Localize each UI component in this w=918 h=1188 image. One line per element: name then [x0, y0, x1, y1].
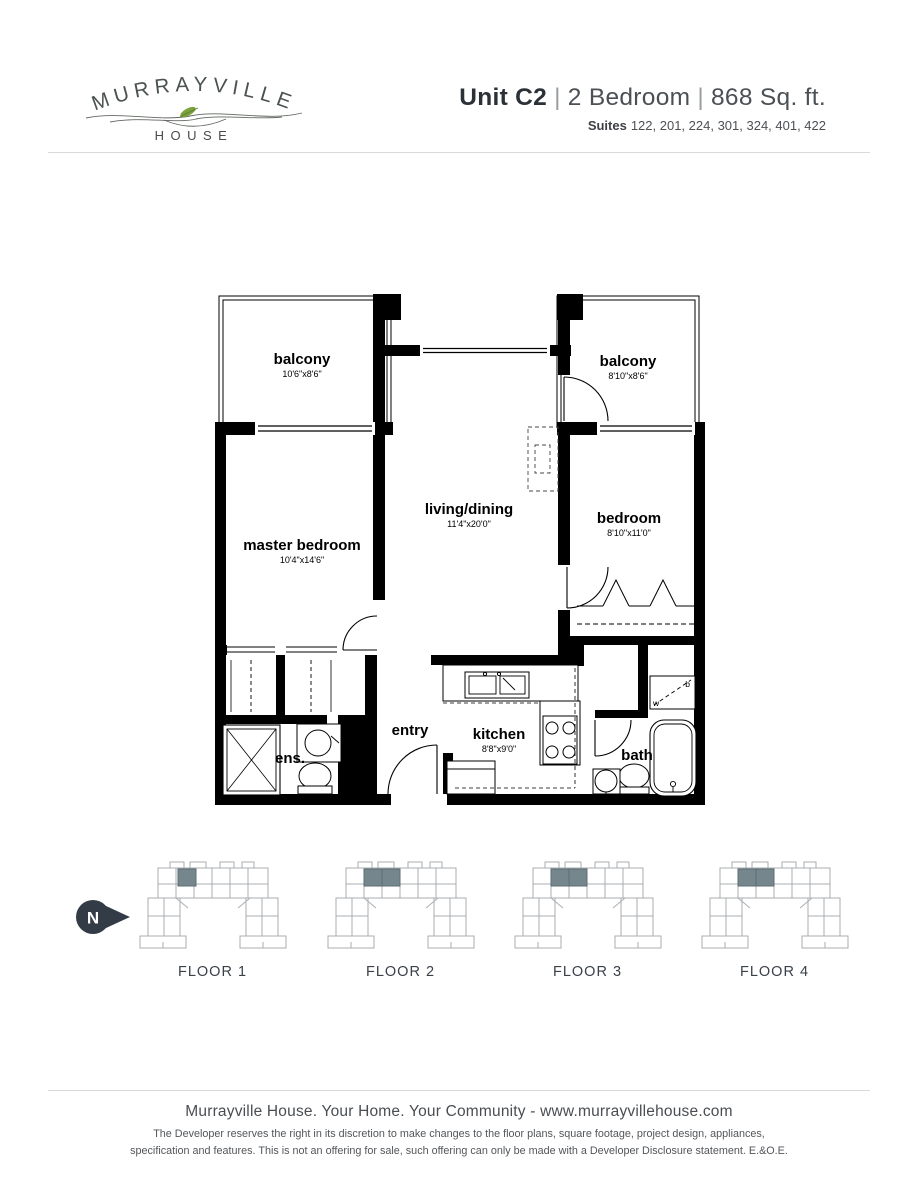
floorplate-floor-2: FLOOR 2	[318, 858, 483, 980]
floorplate-floor-4: FLOOR 4	[692, 858, 857, 980]
suites-numbers: 122, 201, 224, 301, 324, 401, 422	[631, 118, 826, 133]
room-kitchen: kitchen	[473, 726, 526, 743]
room-ensuite: ens.	[275, 750, 305, 767]
room-balcony-right: balcony	[600, 353, 657, 370]
room-master-bedroom: master bedroom	[243, 537, 361, 554]
bedroom-closet	[577, 580, 694, 624]
floorplate-floor-1: FLOOR 1	[130, 858, 295, 980]
highlighted-unit	[756, 869, 774, 886]
floor-label: FLOOR 3	[505, 964, 670, 980]
building-plan-floor-3	[505, 858, 670, 953]
disclaimer-line-2: specification and features. This is not …	[0, 1143, 918, 1160]
room-balcony-left: balcony	[274, 351, 331, 368]
highlighted-unit	[738, 869, 756, 886]
unit-type: 2 Bedroom	[568, 84, 691, 111]
header-divider	[48, 152, 870, 153]
room-living-dining-dims: 11'4"x20'0"	[447, 519, 491, 529]
building-plan-floor-1	[130, 858, 295, 953]
logo-wave-lines	[86, 113, 302, 126]
floor-label: FLOOR 2	[318, 964, 483, 980]
floorplate-floor-3: FLOOR 3	[505, 858, 670, 980]
room-bedroom: bedroom	[597, 510, 661, 527]
floor-label: FLOOR 4	[692, 964, 857, 980]
disclaimer-line-1: The Developer reserves the right in its …	[0, 1126, 918, 1143]
washer-label: w	[652, 698, 660, 708]
fireplace-niche	[528, 427, 558, 491]
unit-number: Unit C2	[459, 84, 547, 111]
unit-title: Unit C2|2 Bedroom|868 Sq. ft.	[459, 84, 826, 112]
footer-divider	[48, 1090, 870, 1091]
highlighted-unit	[569, 869, 587, 886]
highlighted-unit	[551, 869, 569, 886]
laundry-closet: b w	[650, 676, 695, 709]
highlighted-unit	[178, 869, 196, 886]
separator: |	[690, 84, 711, 111]
room-bath: bath	[621, 747, 653, 764]
room-bedroom-dims: 8'10"x11'0"	[607, 528, 651, 538]
room-living-dining: living/dining	[425, 501, 513, 518]
building-plan-floor-2	[318, 858, 483, 953]
flyer-page: MURRAYVILLE HOUSE Unit C2|2 Bedroom|868 …	[0, 0, 918, 1188]
suites-line: Suites122, 201, 224, 301, 324, 401, 422	[459, 118, 826, 133]
room-master-bedroom-dims: 10'4"x14'6"	[280, 555, 324, 565]
footer-tagline: Murrayville House. Your Home. Your Commu…	[0, 1103, 918, 1121]
room-labels: balcony 10'6"x8'6" balcony 8'10"x8'6" ma…	[243, 351, 661, 767]
room-balcony-right-dims: 8'10"x8'6"	[608, 371, 647, 381]
suites-label: Suites	[588, 118, 627, 133]
room-balcony-left-dims: 10'6"x8'6"	[282, 369, 321, 379]
floor-label: FLOOR 1	[130, 964, 295, 980]
separator: |	[547, 84, 568, 111]
floor-plan: b w balcony 10'6"x8'6" balcony 8'10"x8'6…	[213, 288, 705, 810]
unit-title-block: Unit C2|2 Bedroom|868 Sq. ft. Suites122,…	[459, 84, 826, 133]
murrayville-house-logo: MURRAYVILLE HOUSE	[84, 56, 304, 144]
logo-subtext: HOUSE	[155, 128, 234, 143]
footer-disclaimer: The Developer reserves the right in its …	[0, 1126, 918, 1159]
compass-north-icon: N	[74, 898, 134, 936]
dryer-label: b	[685, 679, 690, 689]
room-kitchen-dims: 8'8"x9'0"	[482, 744, 516, 754]
highlighted-unit	[364, 869, 382, 886]
highlighted-unit	[382, 869, 400, 886]
compass-label: N	[87, 909, 99, 928]
building-plan-floor-4	[692, 858, 857, 953]
unit-area: 868 Sq. ft.	[711, 84, 826, 111]
room-entry: entry	[392, 722, 429, 739]
